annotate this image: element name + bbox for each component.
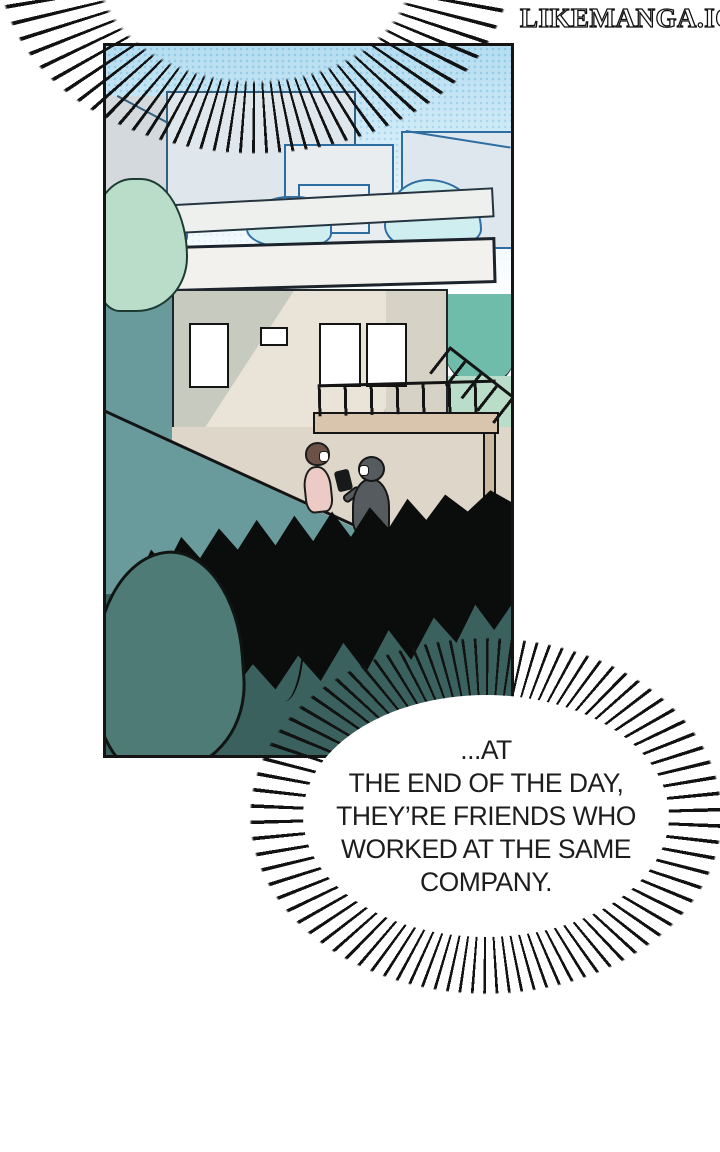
person-hood-mask: [359, 465, 369, 476]
bubble-bottom-line-3: THEY’RE FRIENDS WHO: [336, 800, 636, 833]
speech-bubble-top: RELATIONSHIP IS COMPLICATED...: [0, 0, 520, 160]
site-watermark: LIKEMANGA.IO: [520, 3, 716, 34]
bubble-bottom-line-4: WORKED AT THE SAME: [336, 833, 636, 866]
burst-spikes-top: [0, 0, 520, 160]
window-1: [189, 323, 229, 388]
bubble-bottom-line-5: COMPANY.: [336, 866, 636, 899]
bubble-body-bottom: ...AT THE END OF THE DAY, THEY’RE FRIEND…: [303, 695, 669, 937]
person-pink-mask: [319, 451, 329, 462]
window-small: [260, 327, 288, 346]
window-2: [319, 323, 361, 387]
bubble-text-bottom: ...AT THE END OF THE DAY, THEY’RE FRIEND…: [336, 734, 636, 899]
bubble-bottom-line-1: ...AT: [336, 734, 636, 767]
manga-page: RELATIONSHIP IS COMPLICATED... LIKEMANGA…: [0, 0, 720, 1152]
bubble-bottom-line-2: THE END OF THE DAY,: [336, 767, 636, 800]
speech-bubble-bottom: ...AT THE END OF THE DAY, THEY’RE FRIEND…: [242, 632, 720, 1000]
window-3: [366, 323, 407, 387]
